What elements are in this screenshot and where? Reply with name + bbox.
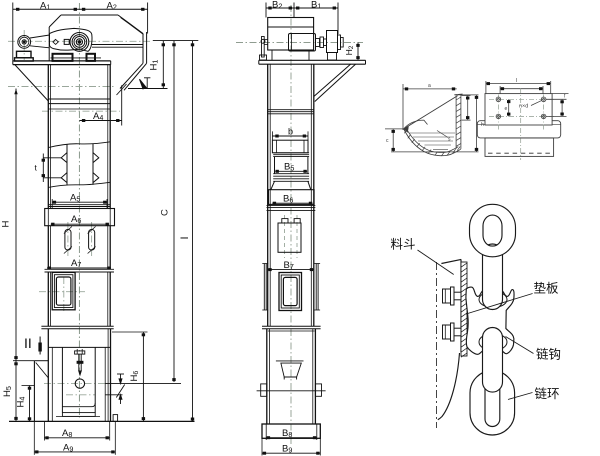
svg-text:B5: B5: [284, 161, 294, 172]
svg-text:I: I: [179, 236, 191, 239]
svg-text:B2: B2: [272, 0, 282, 10]
svg-text:B8: B8: [282, 428, 292, 439]
svg-text:H4: H4: [16, 397, 27, 408]
svg-text:垫板: 垫板: [534, 281, 560, 296]
svg-text:b: b: [288, 126, 293, 136]
svg-text:II: II: [24, 335, 32, 351]
svg-text:链钩: 链钩: [536, 347, 561, 362]
svg-text:H6: H6: [129, 371, 140, 382]
svg-text:B7: B7: [284, 260, 294, 271]
svg-text:A2: A2: [107, 0, 117, 11]
svg-text:A4: A4: [93, 111, 103, 122]
svg-text:n×d: n×d: [519, 104, 528, 110]
svg-text:A9: A9: [63, 442, 73, 453]
svg-text:l: l: [516, 78, 517, 84]
svg-text:料斗: 料斗: [391, 238, 416, 252]
svg-text:A5: A5: [70, 192, 80, 203]
svg-text:h: h: [481, 122, 484, 128]
svg-text:C: C: [160, 209, 171, 216]
svg-text:A6: A6: [71, 214, 81, 225]
svg-text:B6: B6: [283, 193, 293, 204]
svg-text:B1: B1: [311, 0, 321, 10]
svg-text:H1: H1: [149, 60, 160, 71]
svg-text:H5: H5: [2, 386, 13, 397]
svg-text:e: e: [505, 106, 508, 112]
svg-text:A1: A1: [40, 0, 50, 11]
svg-text:A8: A8: [62, 428, 72, 439]
svg-text:H: H: [1, 220, 12, 227]
svg-text:a: a: [428, 83, 431, 89]
svg-text:B9: B9: [282, 443, 292, 454]
svg-text:A7: A7: [71, 258, 81, 269]
svg-text:链环: 链环: [535, 386, 560, 401]
